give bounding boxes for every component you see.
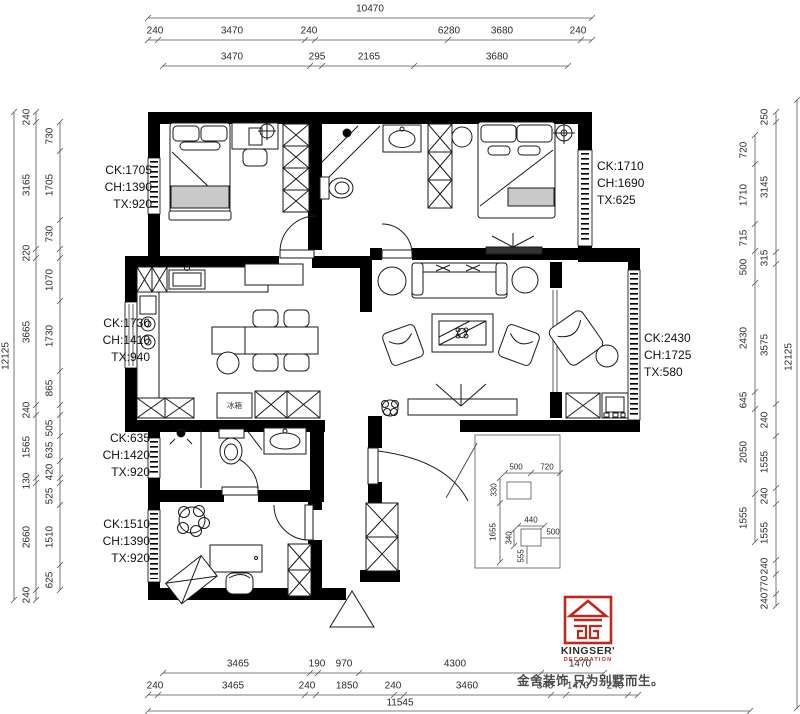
door-bath1-icon [382, 250, 412, 258]
dim-label: 240 [147, 26, 164, 37]
dim-label: 130 [22, 473, 33, 490]
dim-label: 340 [505, 531, 514, 544]
tv-icon [486, 247, 542, 254]
dim-label: 715 [739, 230, 750, 247]
dim-label: 1510 [45, 526, 56, 548]
furniture-master-bedroom [428, 122, 575, 254]
chair-icon [217, 352, 239, 374]
chair-icon [226, 573, 253, 594]
dim-label: 240 [570, 26, 587, 37]
window-label-master: CK:1710 CH:1690 TX:625 [597, 158, 644, 209]
dim-label: 1705 [45, 174, 56, 196]
chair-icon [284, 310, 309, 327]
dim-label: 555 [517, 549, 526, 562]
dim-label: 3680 [491, 26, 513, 37]
door-bed2-icon [305, 505, 313, 540]
dim-label: 6280 [438, 26, 460, 37]
dim-label: 240 [22, 402, 33, 419]
dim-label: 240 [760, 412, 771, 429]
dim-label: 1555 [739, 507, 750, 529]
side-table-icon [512, 267, 538, 293]
dim-label: 240 [760, 488, 771, 505]
dim-label: 1655 [489, 523, 498, 541]
dim-label: 730 [45, 128, 56, 145]
dim-label: 240 [760, 593, 771, 610]
door-bed1-icon [280, 250, 314, 258]
dim-label: 250 [760, 109, 771, 126]
shower-icon [177, 429, 185, 437]
dim-label: 315 [760, 250, 771, 267]
dim-label: 3470 [221, 26, 243, 37]
chair-icon [243, 149, 267, 166]
window-label-balcony: CK:2430 CH:1725 TX:580 [644, 330, 691, 381]
dim-label: 500 [739, 259, 750, 276]
dim-label: 525 [45, 488, 56, 505]
dim-label: 240 [301, 26, 318, 37]
dim-label: 190 [309, 659, 326, 670]
dim-label: 865 [45, 380, 56, 397]
dim-label: 1070 [45, 269, 56, 291]
dim-label: 12125 [1, 342, 12, 370]
toilet-icon [219, 429, 244, 438]
chair-icon [253, 354, 278, 371]
dim-label: 12125 [784, 343, 795, 371]
detail-inset [446, 435, 563, 568]
dim-label: 240 [299, 681, 316, 692]
dim-label: 240 [22, 109, 33, 126]
dim-label: 645 [739, 392, 750, 409]
dim-label: 1710 [739, 184, 750, 206]
dim-label: 4300 [444, 659, 466, 670]
dim-label: 500 [509, 463, 522, 472]
door-bath2-icon [222, 487, 258, 495]
dim-label: 720 [739, 142, 750, 159]
brand-subname: DECORATION [558, 657, 618, 663]
dim-label: 730 [45, 226, 56, 243]
furniture-kitchen [137, 264, 320, 418]
plant-icon [178, 506, 210, 537]
dim-label: 720 [540, 463, 553, 472]
window-label-bath2: CK:635 CH:1420 TX:920 [70, 430, 150, 481]
window-label-kitchen: CK:1730 CH:1410 TX:940 [70, 315, 150, 366]
sofa-icon [412, 263, 507, 298]
dim-label: 1850 [336, 681, 358, 692]
dim-label: 770 [760, 576, 771, 593]
dim-label: 440 [524, 516, 537, 525]
dim-label: 420 [45, 464, 56, 481]
dim-label: 11545 [386, 698, 413, 709]
toilet-icon [320, 177, 329, 199]
dim-label: 3465 [227, 659, 249, 670]
furniture-bedroom-1 [169, 122, 309, 220]
furniture-living-room [378, 263, 541, 416]
plant-icon [382, 400, 399, 416]
window-balcony-icon [628, 270, 640, 420]
dim-label: 1555 [760, 522, 771, 544]
dim-label: 3460 [456, 681, 478, 692]
dim-label: 1555 [760, 451, 771, 473]
dim-label: 240 [385, 681, 402, 692]
door-entry-icon [368, 448, 378, 484]
brand-name: KINGSER' [558, 645, 618, 657]
dim-label: 10470 [356, 4, 384, 15]
dim-label: 2660 [22, 526, 33, 548]
dim-label: 240 [22, 587, 33, 604]
furniture-bathroom-1 [320, 125, 421, 199]
armchair-icon [381, 323, 425, 367]
brand-slogan: 金舍装饰 只为别墅而生。 [517, 670, 664, 689]
furniture-bathroom-2 [170, 428, 306, 488]
tv-cabinet-icon [408, 399, 517, 415]
dim-label: 3465 [222, 681, 244, 692]
dim-label: 3165 [22, 174, 33, 196]
cabinet-icon [245, 264, 303, 285]
dim-label: 240 [760, 558, 771, 575]
dim-label: 500 [546, 528, 559, 537]
dim-label: 330 [490, 483, 499, 496]
floor-plan-page: 10470 240 3470 240 6280 3680 240 3470 29… [0, 0, 800, 714]
dim-label: 1565 [22, 436, 33, 458]
dim-label: 240 [147, 681, 164, 692]
dim-label: 2050 [739, 441, 750, 463]
dim-label: 3145 [760, 176, 771, 198]
fridge-label: 冰箱 [217, 400, 252, 411]
dim-label: 1730 [45, 325, 56, 347]
chair-icon [284, 354, 309, 371]
furniture-bedroom-2 [166, 506, 311, 604]
round-table-icon [596, 345, 618, 367]
entry-area [330, 503, 398, 627]
dining-table-icon [212, 327, 245, 354]
side-table-icon [378, 267, 406, 295]
dim-label: 2430 [739, 327, 750, 349]
dim-label: 3470 [221, 52, 243, 63]
dim-label: 220 [22, 245, 33, 262]
window-label-bed2: CK:1510 CH:1390 TX:920 [70, 516, 150, 567]
dim-label: 970 [336, 659, 353, 670]
dim-label: 3665 [22, 321, 33, 343]
chair-icon [253, 310, 278, 327]
entry-door-swing [378, 451, 468, 501]
dim-label: 2165 [358, 52, 380, 63]
window-label-bed1: CK:1705 CH:1390 TX:920 [72, 162, 152, 213]
dim-label: 295 [309, 52, 326, 63]
dim-label: 3680 [486, 52, 508, 63]
dim-label: 505 [45, 420, 56, 437]
dim-label: 3575 [760, 334, 771, 356]
armchair-icon [497, 323, 541, 367]
stool-icon [452, 127, 472, 147]
kingser-logo-icon [565, 597, 611, 643]
dim-label: 625 [45, 572, 56, 589]
dim-label: 635 [45, 442, 56, 459]
